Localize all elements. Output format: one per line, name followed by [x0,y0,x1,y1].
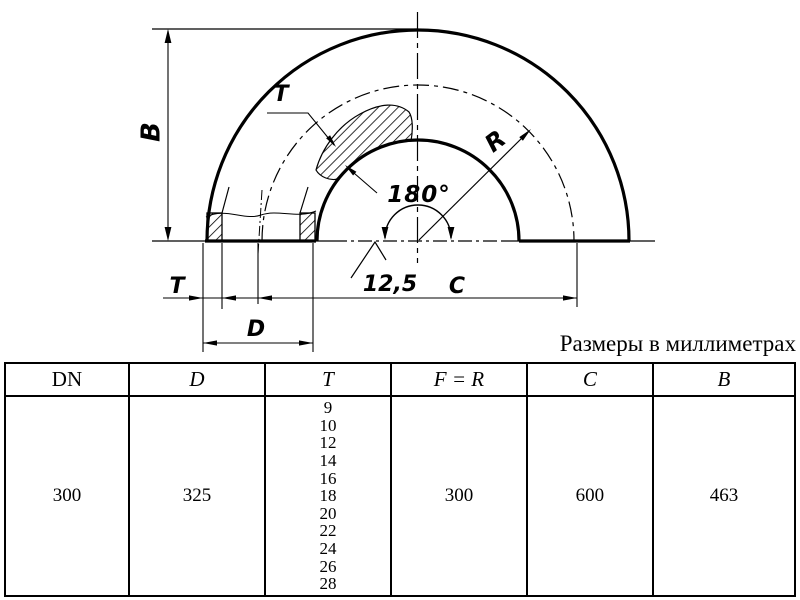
arrowhead-t-right [222,295,236,300]
page: B T R 180° 12,5 T C D Размеры в миллимет… [0,0,800,600]
broken-out-section-hatch [316,105,412,179]
arrowhead-angle-left [382,227,389,240]
col-header-d: D [129,363,265,396]
label-d: D [247,317,265,342]
col-header-t: T [265,363,391,396]
table-data-row: 300 325 9 10 12 14 16 18 20 22 24 26 28 … [5,396,795,596]
return-bend-technical-drawing: B T R 180° 12,5 T C D [0,0,800,362]
cell-b: 463 [653,396,795,596]
cell-c: 600 [527,396,653,596]
arrowhead-c-right [563,295,577,300]
arrowhead-c-left [258,295,272,300]
left-wall-section-hatch [207,213,222,241]
left-wall-edge-continuation [222,187,229,213]
col-header-c: C [527,363,653,396]
right-wall-section-hatch [300,213,315,241]
arrowhead-t-left [189,295,203,300]
label-t-bottom: T [169,274,186,299]
label-angle: 180° [387,182,451,208]
col-header-f-r: F = R [391,363,527,396]
arrowhead-d-left [203,340,217,345]
cell-t-values: 9 10 12 14 16 18 20 22 24 26 28 [265,396,391,596]
label-b: B [137,122,167,142]
t-values-list: 9 10 12 14 16 18 20 22 24 26 28 [266,399,390,593]
port-centerline-dashdot [258,190,262,254]
col-header-dn: DN [5,363,129,396]
cell-dn: 300 [5,396,129,596]
right-wall-edge-continuation [300,187,308,213]
table-header-row: DN D T F = R C B [5,363,795,396]
cell-f-r: 300 [391,396,527,596]
cell-d: 325 [129,396,265,596]
label-t-top: T [273,82,290,107]
arrowhead-angle-right [448,227,455,240]
arrowhead-b-bottom [165,227,172,241]
dimensions-table: DN D T F = R C B 300 325 9 10 12 14 16 1… [4,362,796,597]
col-header-b: B [653,363,795,396]
t-leader-line [267,113,334,145]
label-c: C [449,274,465,299]
label-note-12-5: 12,5 [363,272,417,297]
arrowhead-d-right [299,340,313,345]
units-caption: Размеры в миллиметрах [560,331,796,357]
arrowhead-b-top [165,29,172,43]
